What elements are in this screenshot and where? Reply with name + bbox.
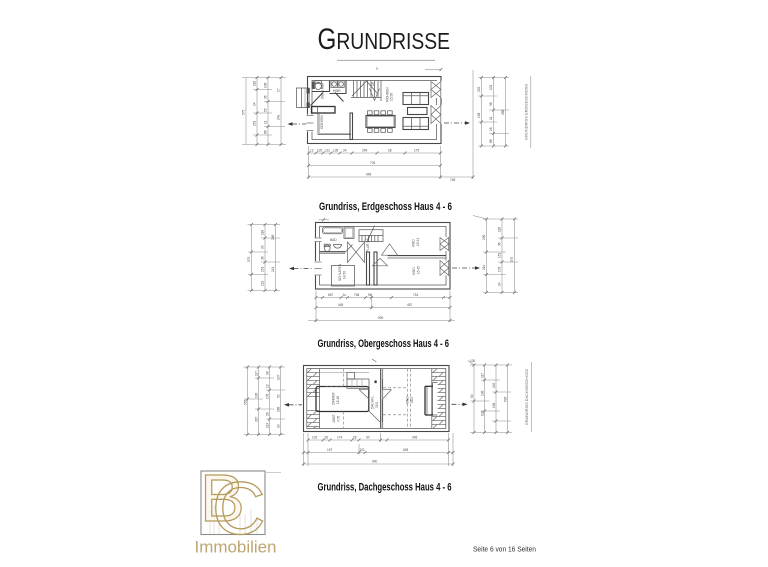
svg-text:24: 24 — [253, 102, 257, 106]
svg-text:178: 178 — [497, 266, 501, 272]
svg-text:90: 90 — [366, 436, 370, 440]
svg-text:13: 13 — [265, 384, 269, 388]
svg-text:116: 116 — [497, 227, 501, 232]
svg-text:117: 117 — [480, 373, 484, 378]
svg-text:900: 900 — [378, 316, 384, 320]
svg-text:98: 98 — [265, 371, 269, 375]
svg-text:197: 197 — [327, 448, 333, 452]
svg-text:Seite 6 von 16 Seiten: Seite 6 von 16 Seiten — [473, 545, 536, 554]
svg-text:120: 120 — [317, 149, 323, 153]
svg-text:9s: 9s — [368, 293, 372, 297]
svg-text:176: 176 — [265, 393, 269, 399]
svg-text:90: 90 — [470, 394, 474, 398]
svg-text:945: 945 — [366, 173, 372, 177]
svg-text:24: 24 — [343, 149, 347, 153]
svg-text:113: 113 — [265, 423, 269, 428]
svg-text:90: 90 — [260, 245, 264, 249]
svg-text:745: 745 — [450, 178, 456, 182]
svg-text:138: 138 — [477, 112, 481, 118]
svg-text:a: a — [376, 67, 378, 71]
svg-text:36: 36 — [497, 242, 501, 246]
svg-text:11s: 11s — [325, 149, 330, 153]
svg-text:11: 11 — [264, 120, 268, 124]
svg-text:18: 18 — [489, 127, 493, 131]
svg-text:18: 18 — [371, 82, 375, 86]
svg-text:1s: 1s — [343, 293, 347, 297]
svg-text:88: 88 — [489, 139, 493, 143]
svg-text:245: 245 — [412, 436, 418, 440]
svg-text:Grundriss, Erdgeschoss Haus 4: Grundriss, Erdgeschoss Haus 4 - 6 — [319, 201, 452, 213]
svg-text:KOCHEN: KOCHEN — [320, 115, 324, 129]
svg-text:118: 118 — [253, 81, 257, 86]
svg-text:GRUNDRISS ERDGESCHOSS: GRUNDRISS ERDGESCHOSS — [524, 84, 529, 141]
svg-text:575: 575 — [242, 109, 246, 115]
svg-text:ABST.: ABST. — [332, 414, 336, 423]
svg-text:107: 107 — [276, 374, 280, 380]
svg-text:26: 26 — [325, 436, 329, 440]
svg-text:245: 245 — [492, 382, 496, 388]
svg-text:17: 17 — [277, 88, 281, 92]
svg-text:FLUR 5.5: FLUR 5.5 — [366, 238, 370, 252]
svg-text:130: 130 — [254, 392, 258, 398]
svg-text:296: 296 — [482, 234, 486, 240]
svg-text:151: 151 — [260, 266, 264, 272]
svg-text:101: 101 — [489, 84, 493, 90]
svg-text:575: 575 — [510, 256, 514, 262]
svg-text:703: 703 — [370, 161, 376, 165]
svg-text:101: 101 — [360, 448, 366, 452]
svg-text:DIELE 5.74: DIELE 5.74 — [321, 82, 325, 99]
svg-text:457: 457 — [407, 303, 413, 307]
svg-text:136: 136 — [480, 390, 484, 396]
svg-text:135: 135 — [333, 149, 339, 153]
svg-text:15.58: 15.58 — [390, 93, 394, 101]
svg-text:28: 28 — [388, 149, 392, 153]
svg-text:748: 748 — [354, 293, 360, 297]
svg-text:15.45: 15.45 — [417, 266, 421, 274]
svg-text:107: 107 — [480, 410, 484, 416]
svg-text:241: 241 — [271, 266, 275, 272]
svg-text:288: 288 — [501, 109, 505, 115]
svg-text:14.50: 14.50 — [343, 271, 347, 279]
svg-text:249: 249 — [362, 149, 368, 153]
svg-text:GRUNDRISSE: GRUNDRISSE — [318, 23, 451, 56]
svg-text:GRUNDRISS DACHGESCHOSS: GRUNDRISS DACHGESCHOSS — [525, 368, 529, 425]
svg-text:166: 166 — [276, 406, 280, 412]
svg-text:605: 605 — [403, 448, 409, 452]
svg-text:11: 11 — [489, 116, 493, 120]
svg-text:151: 151 — [497, 252, 501, 258]
svg-text:KIND: KIND — [406, 396, 410, 404]
svg-text:251: 251 — [253, 120, 257, 126]
svg-text:555: 555 — [243, 399, 247, 405]
svg-text:575: 575 — [247, 256, 251, 262]
svg-text:287: 287 — [254, 416, 258, 422]
svg-text:SCHLAFEN: SCHLAFEN — [338, 263, 342, 281]
svg-text:138: 138 — [264, 82, 268, 88]
svg-text:21s: 21s — [482, 264, 486, 270]
svg-text:12: 12 — [310, 149, 314, 153]
svg-text:KIND: KIND — [412, 267, 416, 275]
svg-text:117: 117 — [254, 371, 258, 376]
svg-text:249: 249 — [277, 114, 281, 120]
svg-text:KIND: KIND — [412, 239, 416, 247]
svg-text:36: 36 — [260, 256, 264, 260]
svg-text:667: 667 — [328, 293, 334, 297]
svg-text:248: 248 — [271, 234, 275, 240]
svg-text:59: 59 — [276, 394, 280, 398]
svg-text:118: 118 — [260, 230, 264, 235]
svg-text:26: 26 — [265, 412, 269, 416]
svg-text:36: 36 — [264, 95, 268, 99]
svg-text:25.0: 25.0 — [375, 402, 379, 408]
svg-text:26: 26 — [353, 436, 357, 440]
svg-text:102: 102 — [312, 436, 318, 440]
svg-text:129: 129 — [260, 280, 264, 286]
svg-text:88: 88 — [264, 130, 268, 134]
svg-text:196: 196 — [492, 402, 496, 408]
svg-text:595: 595 — [503, 396, 507, 402]
svg-text:ZIMMER: ZIMMER — [332, 392, 336, 405]
svg-text:90: 90 — [276, 424, 280, 428]
svg-text:36: 36 — [489, 102, 493, 106]
svg-text:445: 445 — [338, 303, 344, 307]
svg-text:174: 174 — [337, 436, 343, 440]
svg-text:100: 100 — [470, 359, 476, 363]
svg-text:716: 716 — [413, 293, 419, 297]
svg-text:HWR: HWR — [333, 89, 341, 93]
svg-text:252: 252 — [477, 86, 481, 92]
svg-text:15.16: 15.16 — [336, 396, 340, 404]
svg-text:Immobilien: Immobilien — [195, 538, 277, 557]
svg-text:Grundriss, Obergeschoss Haus 4: Grundriss, Obergeschoss Haus 4 - 6 — [318, 338, 450, 350]
svg-text:900: 900 — [372, 460, 378, 464]
svg-text:24: 24 — [497, 282, 501, 286]
svg-text:16.2: 16.2 — [410, 397, 414, 403]
svg-text:BAD: BAD — [330, 238, 337, 242]
svg-text:55: 55 — [264, 108, 268, 112]
svg-text:13.91: 13.91 — [416, 238, 420, 246]
svg-text:175: 175 — [414, 149, 420, 153]
svg-text:4.76: 4.76 — [337, 416, 341, 422]
svg-text:Grundriss, Dachgeschoss Haus 4: Grundriss, Dachgeschoss Haus 4 - 6 — [318, 482, 452, 494]
